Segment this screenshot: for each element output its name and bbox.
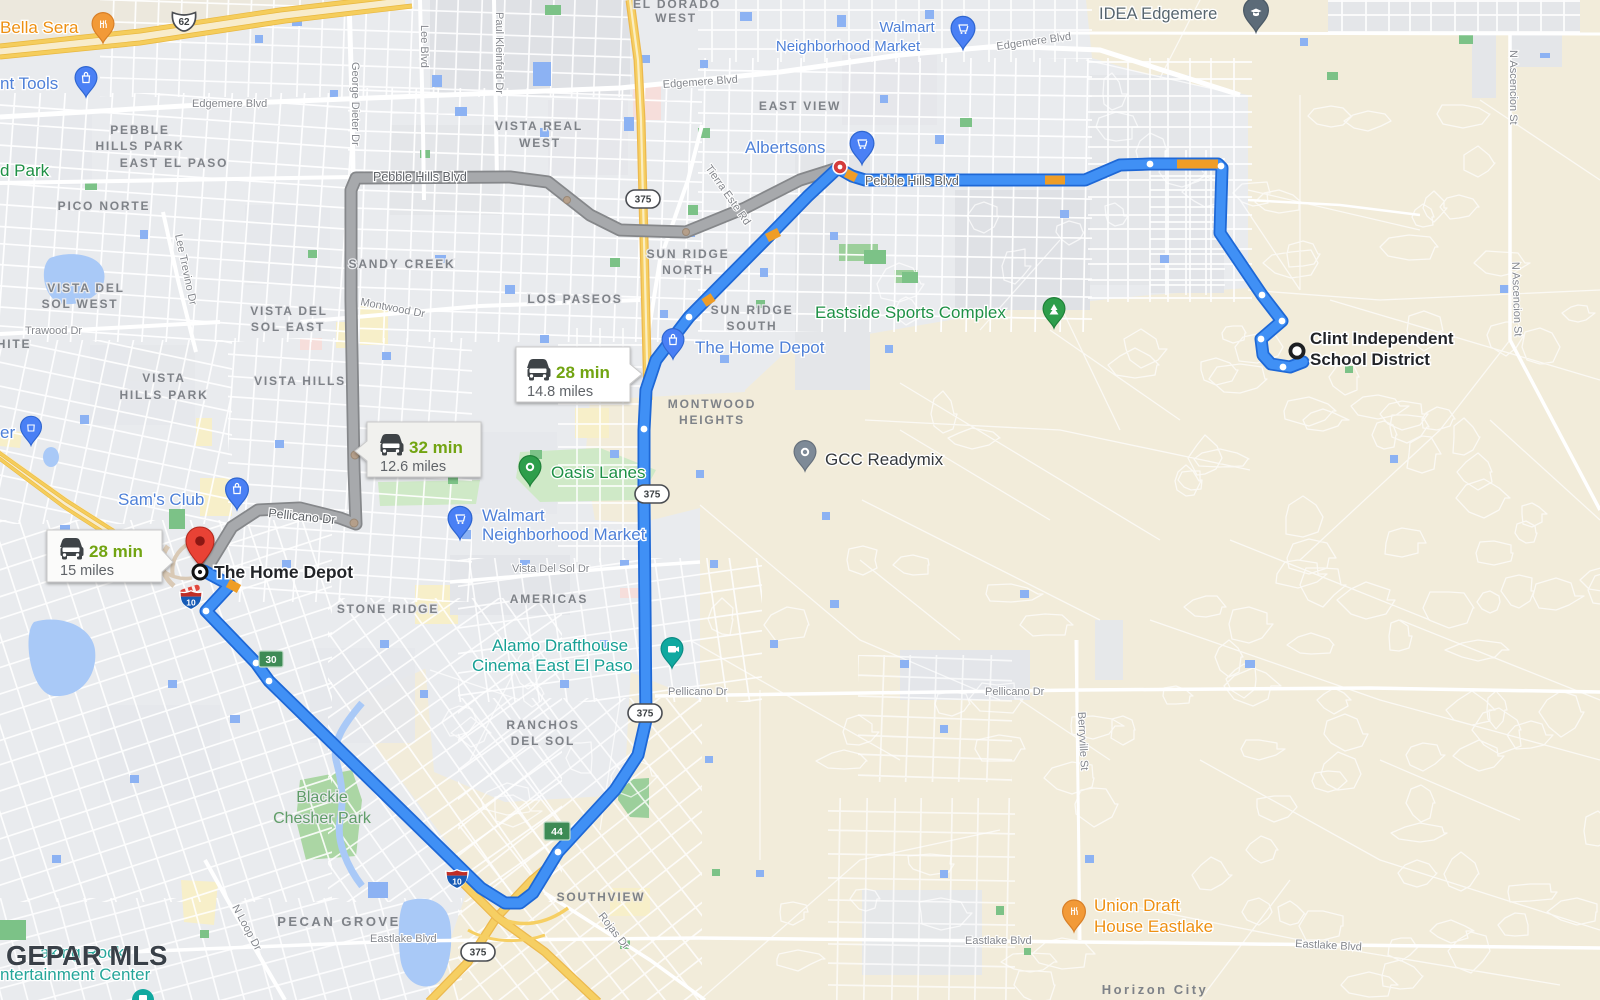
svg-text:32 min: 32 min — [409, 438, 463, 457]
svg-text:Neighborhood Market: Neighborhood Market — [482, 525, 646, 544]
svg-text:STONE RIDGE: STONE RIDGE — [337, 602, 439, 616]
svg-text:62: 62 — [178, 17, 190, 28]
svg-text:Union Draft: Union Draft — [1094, 896, 1180, 915]
svg-text:HILLS PARK: HILLS PARK — [95, 139, 184, 153]
svg-text:44: 44 — [551, 826, 563, 838]
svg-text:House Eastlake: House Eastlake — [1094, 917, 1213, 936]
svg-text:28 min: 28 min — [89, 542, 143, 561]
svg-text:Pellicano Dr: Pellicano Dr — [668, 686, 728, 698]
svg-text:Paul Kleinfeld Dr: Paul Kleinfeld Dr — [493, 12, 505, 94]
svg-text:PECAN GROVE: PECAN GROVE — [277, 914, 401, 929]
svg-text:School District: School District — [1310, 350, 1430, 369]
svg-text:GEPAR MLS: GEPAR MLS — [6, 940, 167, 971]
svg-text:PICO NORTE: PICO NORTE — [58, 199, 151, 213]
svg-text:SOUTH: SOUTH — [727, 319, 778, 333]
svg-text:Walmart: Walmart — [482, 506, 545, 525]
svg-text:SOUTHVIEW: SOUTHVIEW — [557, 890, 646, 904]
svg-text:HILLS PARK: HILLS PARK — [119, 388, 208, 402]
svg-text:Eastlake Blvd: Eastlake Blvd — [965, 935, 1032, 947]
svg-text:SUN RIDGE: SUN RIDGE — [647, 247, 730, 261]
svg-text:LOS PASEOS: LOS PASEOS — [527, 292, 622, 306]
svg-text:375: 375 — [470, 948, 487, 959]
svg-text:Neighborhood Market: Neighborhood Market — [776, 38, 921, 55]
svg-text:28 min: 28 min — [556, 363, 610, 382]
svg-text:MONTWOOD: MONTWOOD — [668, 397, 756, 411]
svg-text:14.8 miles: 14.8 miles — [527, 384, 593, 400]
svg-text:EAST EL PASO: EAST EL PASO — [120, 156, 229, 170]
svg-text:NORTH: NORTH — [662, 263, 714, 277]
svg-text:Sam's Club: Sam's Club — [118, 490, 204, 509]
svg-text:Trawood Dr: Trawood Dr — [25, 325, 82, 337]
svg-text:WEST: WEST — [519, 136, 561, 150]
svg-text:Alamo Drafthouse: Alamo Drafthouse — [492, 636, 628, 655]
svg-text:Blackie: Blackie — [296, 789, 348, 806]
svg-text:Pebble Hills Blvd: Pebble Hills Blvd — [865, 174, 959, 188]
svg-text:SUN RIDGE: SUN RIDGE — [711, 303, 794, 317]
svg-text:Vista Del Sol Dr: Vista Del Sol Dr — [512, 563, 590, 575]
svg-text:nt Tools: nt Tools — [0, 74, 58, 93]
svg-text:WEST: WEST — [655, 11, 697, 25]
svg-text:375: 375 — [644, 490, 661, 501]
svg-text:Eastside Sports Complex: Eastside Sports Complex — [815, 303, 1006, 322]
svg-text:RANCHOS: RANCHOS — [506, 718, 579, 732]
svg-text:375: 375 — [637, 709, 654, 720]
svg-text:Horizon City: Horizon City — [1102, 982, 1209, 997]
svg-text:12.6 miles: 12.6 miles — [380, 459, 446, 475]
svg-text:Albertsons: Albertsons — [745, 138, 825, 157]
svg-text:SOL WEST: SOL WEST — [42, 297, 119, 311]
svg-text:Clint Independent: Clint Independent — [1310, 329, 1454, 348]
svg-text:er: er — [0, 423, 15, 442]
svg-text:HEIGHTS: HEIGHTS — [679, 413, 745, 427]
svg-text:VISTA HILLS: VISTA HILLS — [254, 374, 346, 388]
svg-text:HITE: HITE — [0, 337, 31, 351]
svg-text:Pellicano Dr: Pellicano Dr — [985, 686, 1045, 698]
svg-text:375: 375 — [635, 195, 652, 206]
svg-text:PEBBLE: PEBBLE — [110, 123, 169, 137]
svg-text:Bella Sera: Bella Sera — [0, 18, 79, 37]
svg-text:Edgemere Blvd: Edgemere Blvd — [192, 98, 267, 110]
svg-text:EAST VIEW: EAST VIEW — [759, 99, 841, 113]
svg-text:d Park: d Park — [0, 161, 50, 180]
svg-text:Cinema East El Paso: Cinema East El Paso — [472, 656, 633, 675]
svg-text:N Ascencion St: N Ascencion St — [1507, 50, 1519, 125]
svg-text:Oasis Lanes: Oasis Lanes — [551, 463, 646, 482]
svg-text:George Dieter Dr: George Dieter Dr — [349, 62, 361, 146]
svg-text:VISTA: VISTA — [142, 371, 185, 385]
svg-text:IDEA Edgemere: IDEA Edgemere — [1099, 5, 1217, 23]
svg-text:AMERICAS: AMERICAS — [510, 592, 588, 606]
svg-text:The Home Depot: The Home Depot — [695, 338, 825, 357]
svg-text:15 miles: 15 miles — [60, 563, 114, 579]
svg-text:VISTA DEL: VISTA DEL — [250, 304, 328, 318]
svg-text:Eastlake Blvd: Eastlake Blvd — [370, 933, 437, 945]
svg-text:10: 10 — [452, 877, 462, 887]
svg-text:Lee Blvd: Lee Blvd — [418, 25, 430, 68]
svg-text:SANDY CREEK: SANDY CREEK — [349, 257, 456, 271]
svg-text:10: 10 — [186, 598, 196, 608]
svg-text:EL DORADO: EL DORADO — [633, 0, 721, 11]
svg-text:DEL SOL: DEL SOL — [511, 734, 575, 748]
svg-text:30: 30 — [265, 655, 277, 666]
svg-text:VISTA DEL: VISTA DEL — [47, 281, 125, 295]
svg-text:SOL EAST: SOL EAST — [251, 320, 325, 334]
svg-text:Chesher Park: Chesher Park — [273, 810, 372, 827]
svg-text:The Home Depot: The Home Depot — [214, 562, 353, 582]
svg-text:VISTA REAL: VISTA REAL — [495, 119, 583, 133]
svg-text:Walmart: Walmart — [879, 19, 935, 36]
svg-text:GCC Readymix: GCC Readymix — [825, 450, 944, 469]
svg-text:Pebble Hills Blvd: Pebble Hills Blvd — [373, 170, 467, 184]
